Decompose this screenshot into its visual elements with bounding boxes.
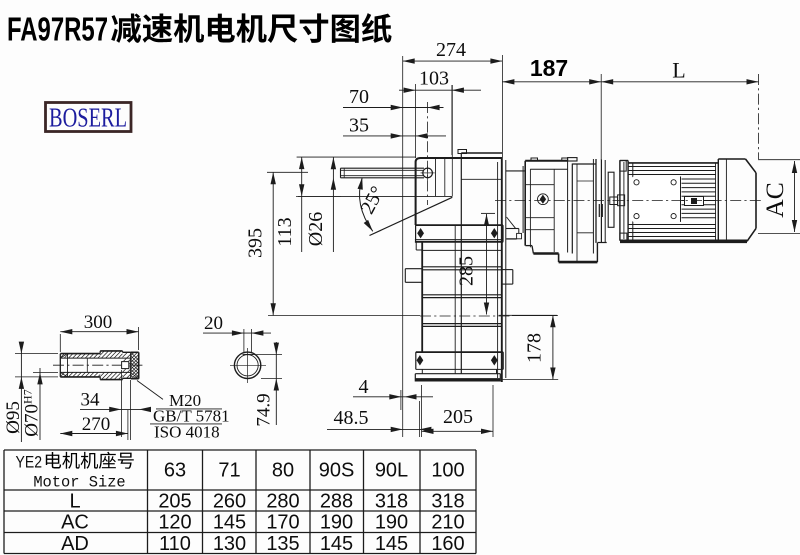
svg-text:20: 20 bbox=[204, 313, 223, 334]
svg-text:AD: AD bbox=[61, 533, 89, 555]
svg-text:178: 178 bbox=[524, 333, 546, 363]
svg-text:318: 318 bbox=[431, 491, 464, 513]
svg-text:YE2: YE2 bbox=[16, 452, 43, 471]
svg-text:210: 210 bbox=[431, 512, 464, 534]
svg-text:130: 130 bbox=[213, 533, 246, 555]
svg-text:205: 205 bbox=[158, 491, 191, 513]
svg-text:170: 170 bbox=[266, 512, 299, 534]
svg-text:103: 103 bbox=[419, 68, 449, 90]
svg-text:260: 260 bbox=[213, 491, 246, 513]
svg-text:74.9: 74.9 bbox=[254, 393, 275, 426]
svg-text:190: 190 bbox=[375, 512, 408, 534]
svg-text:113: 113 bbox=[274, 217, 296, 246]
svg-text:110: 110 bbox=[159, 533, 191, 555]
svg-text:120: 120 bbox=[158, 512, 191, 534]
svg-text:ISO 4018: ISO 4018 bbox=[154, 423, 220, 442]
svg-text:L: L bbox=[69, 491, 80, 513]
svg-text:205: 205 bbox=[443, 406, 473, 428]
svg-text:80: 80 bbox=[272, 460, 294, 482]
svg-text:90L: 90L bbox=[375, 460, 408, 482]
svg-text:48.5: 48.5 bbox=[334, 407, 369, 429]
svg-text:190: 190 bbox=[320, 512, 353, 534]
svg-text:285: 285 bbox=[456, 256, 478, 286]
svg-text:Ø26: Ø26 bbox=[305, 212, 327, 246]
svg-text:274: 274 bbox=[436, 39, 466, 61]
svg-text:100: 100 bbox=[431, 460, 464, 482]
svg-text:135: 135 bbox=[266, 533, 299, 555]
svg-text:145: 145 bbox=[320, 533, 353, 555]
svg-text:FA97R57: FA97R57 bbox=[7, 11, 108, 48]
svg-text:71: 71 bbox=[218, 460, 240, 482]
svg-text:270: 270 bbox=[82, 414, 111, 435]
svg-text:145: 145 bbox=[375, 533, 408, 555]
svg-text:34: 34 bbox=[81, 390, 101, 411]
svg-text:AC: AC bbox=[760, 182, 789, 217]
svg-text:Motor Size: Motor Size bbox=[33, 473, 125, 491]
svg-text:63: 63 bbox=[164, 460, 186, 482]
svg-text:318: 318 bbox=[375, 491, 408, 513]
svg-text:187: 187 bbox=[530, 55, 568, 81]
svg-text:288: 288 bbox=[320, 491, 353, 513]
svg-text:L: L bbox=[672, 58, 685, 83]
svg-text:90S: 90S bbox=[319, 460, 355, 482]
svg-text:145: 145 bbox=[213, 512, 246, 534]
svg-text:300: 300 bbox=[84, 312, 113, 333]
svg-text:395: 395 bbox=[245, 228, 267, 258]
svg-text:35: 35 bbox=[349, 115, 369, 137]
svg-text:70: 70 bbox=[349, 86, 369, 108]
svg-text:280: 280 bbox=[266, 491, 299, 513]
svg-text:4: 4 bbox=[359, 376, 369, 398]
svg-text:160: 160 bbox=[431, 533, 464, 555]
svg-text:AC: AC bbox=[61, 512, 89, 534]
svg-text:BOSERL: BOSERL bbox=[49, 103, 127, 133]
